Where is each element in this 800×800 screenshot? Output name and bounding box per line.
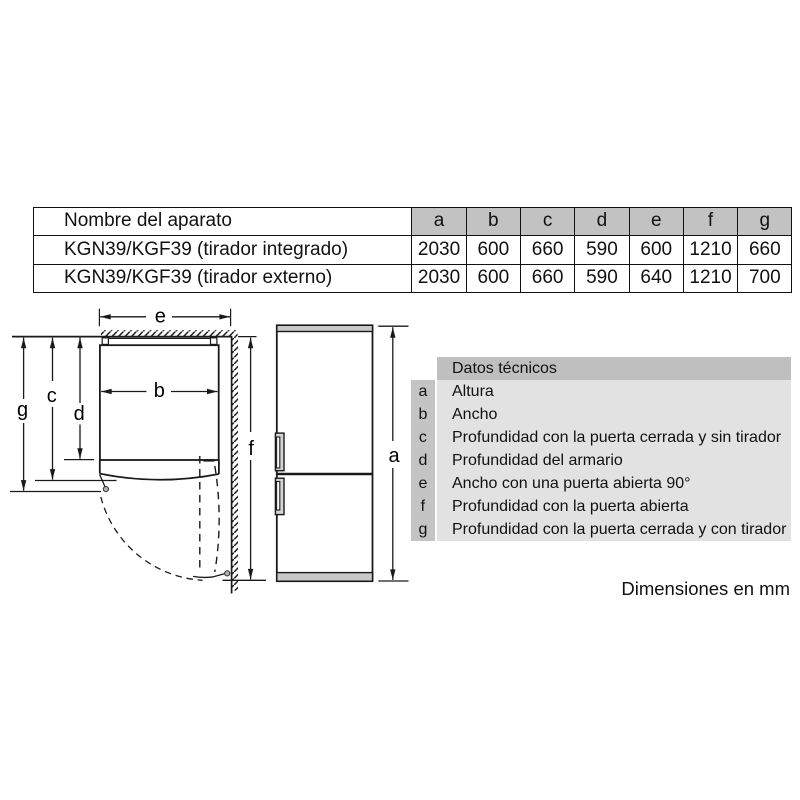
svg-text:e: e	[155, 306, 166, 328]
svg-text:a: a	[388, 445, 400, 467]
svg-text:d: d	[74, 403, 85, 425]
svg-text:g: g	[17, 399, 28, 421]
svg-text:b: b	[154, 380, 165, 402]
svg-text:c: c	[47, 385, 57, 407]
svg-text:f: f	[248, 438, 254, 460]
